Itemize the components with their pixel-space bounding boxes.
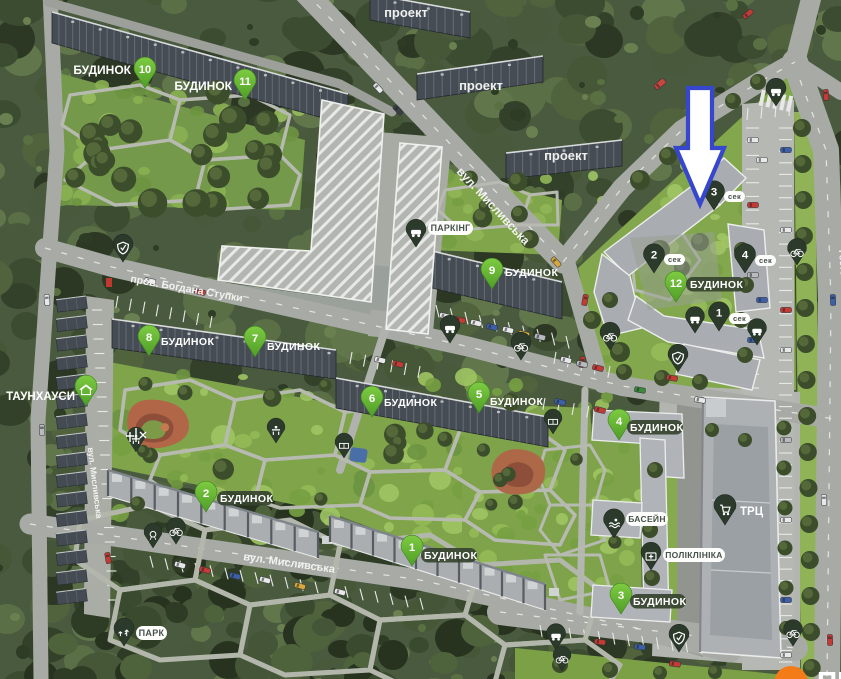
svg-text:БУДИНОК: БУДИНОК: [505, 267, 558, 279]
svg-text:12: 12: [670, 278, 682, 290]
svg-text:БУДИНОК: БУДИНОК: [633, 596, 686, 608]
svg-text:4: 4: [616, 416, 623, 428]
svg-text:БУДИНОК: БУДИНОК: [161, 336, 214, 348]
svg-text:сек: сек: [759, 256, 772, 265]
svg-text:4: 4: [742, 249, 749, 261]
svg-text:10: 10: [139, 64, 151, 76]
svg-text:1: 1: [716, 307, 723, 319]
svg-text:ТРЦ: ТРЦ: [740, 506, 764, 518]
svg-text:сек: сек: [728, 192, 741, 201]
svg-text:БУДИНОК: БУДИНОК: [73, 63, 131, 77]
svg-text:БУДИНОК: БУДИНОК: [267, 341, 320, 353]
svg-text:БУДИНОК: БУДИНОК: [690, 279, 743, 291]
svg-text:БУДИНОК: БУДИНОК: [424, 550, 477, 562]
svg-text:3: 3: [711, 186, 717, 198]
svg-text:сек: сек: [668, 255, 681, 264]
svg-text:1: 1: [409, 542, 416, 554]
svg-text:ПАРК: ПАРК: [139, 628, 165, 638]
svg-text:6: 6: [369, 393, 375, 405]
svg-text:2: 2: [203, 488, 209, 500]
svg-text:3: 3: [618, 590, 624, 602]
svg-text:ПЦ: ПЦ: [817, 666, 841, 679]
svg-text:проект: проект: [459, 78, 503, 93]
svg-text:БАСЕЙН: БАСЕЙН: [628, 513, 666, 524]
svg-text:ПОЛІКЛІНІКА: ПОЛІКЛІНІКА: [665, 550, 722, 560]
svg-text:9: 9: [489, 265, 495, 277]
svg-text:БУДИНОК: БУДИНОК: [490, 396, 543, 408]
svg-text:7: 7: [252, 333, 258, 345]
svg-text:БУДИНОК: БУДИНОК: [384, 397, 437, 409]
svg-text:проект: проект: [384, 5, 428, 20]
svg-text:БУДИНОК: БУДИНОК: [630, 422, 683, 434]
svg-text:БУДИНОК: БУДИНОК: [220, 493, 273, 505]
svg-text:5: 5: [476, 389, 483, 401]
svg-text:ТАУНХАУСИ: ТАУНХАУСИ: [6, 391, 75, 403]
svg-text:2: 2: [651, 249, 657, 261]
svg-text:11: 11: [239, 76, 251, 88]
svg-text:сек: сек: [733, 314, 746, 323]
svg-text:проект: проект: [544, 148, 588, 163]
svg-text:БУДИНОК: БУДИНОК: [174, 79, 232, 93]
svg-text:8: 8: [146, 332, 153, 344]
svg-text:ПАРКІНГ: ПАРКІНГ: [431, 223, 471, 233]
